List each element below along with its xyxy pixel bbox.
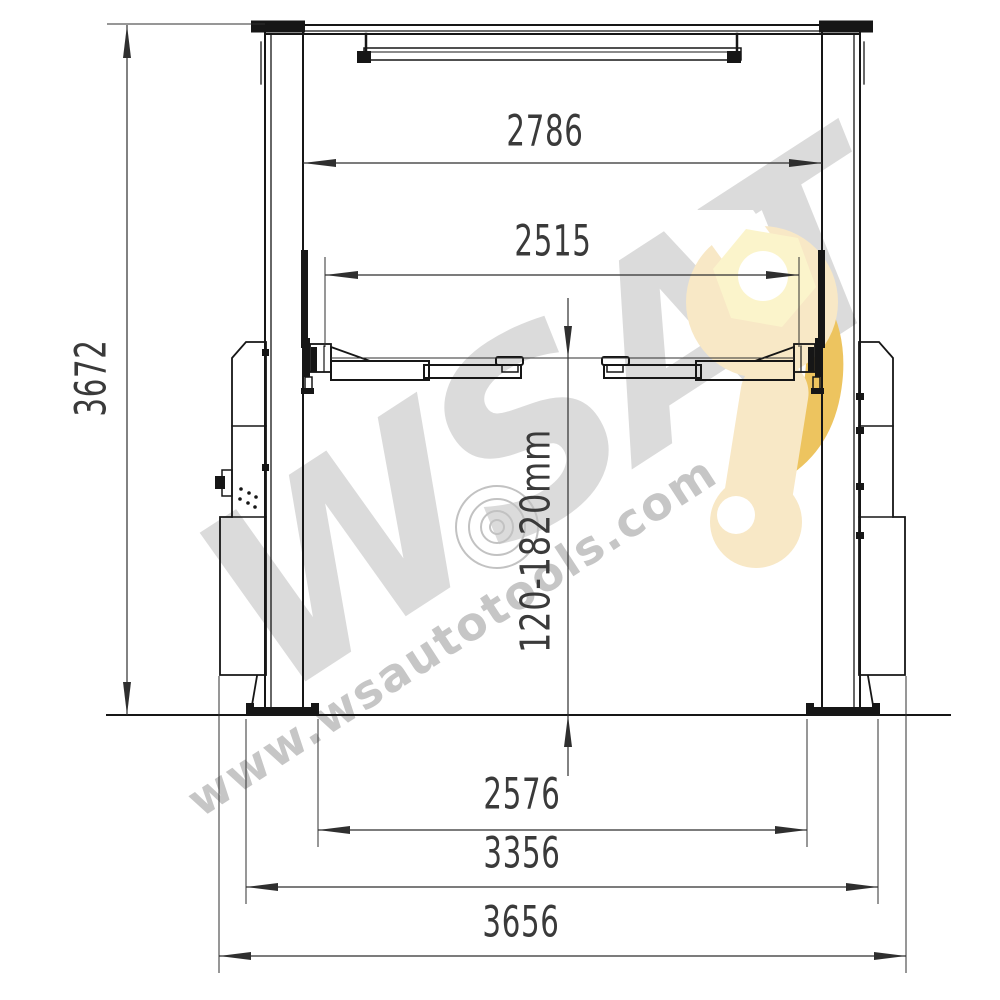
dim-base-inner-span-label: 2576 bbox=[465, 774, 578, 817]
dimension-labels: 3672 2786 2515 120-1820mm 2576 3356 3656 bbox=[0, 0, 1000, 1000]
drawing-canvas: WSAT www.wsautotools.com bbox=[0, 0, 1000, 1000]
dim-overall-height-label: 3672 bbox=[71, 321, 114, 434]
dim-arm-span-label: 2515 bbox=[496, 221, 609, 264]
dim-overall-width-label: 3656 bbox=[464, 902, 577, 945]
dim-base-outer-span-label: 3356 bbox=[465, 833, 578, 876]
dim-lift-range-label: 120-1820mm bbox=[516, 397, 557, 684]
dim-column-span-top-label: 2786 bbox=[488, 111, 601, 154]
